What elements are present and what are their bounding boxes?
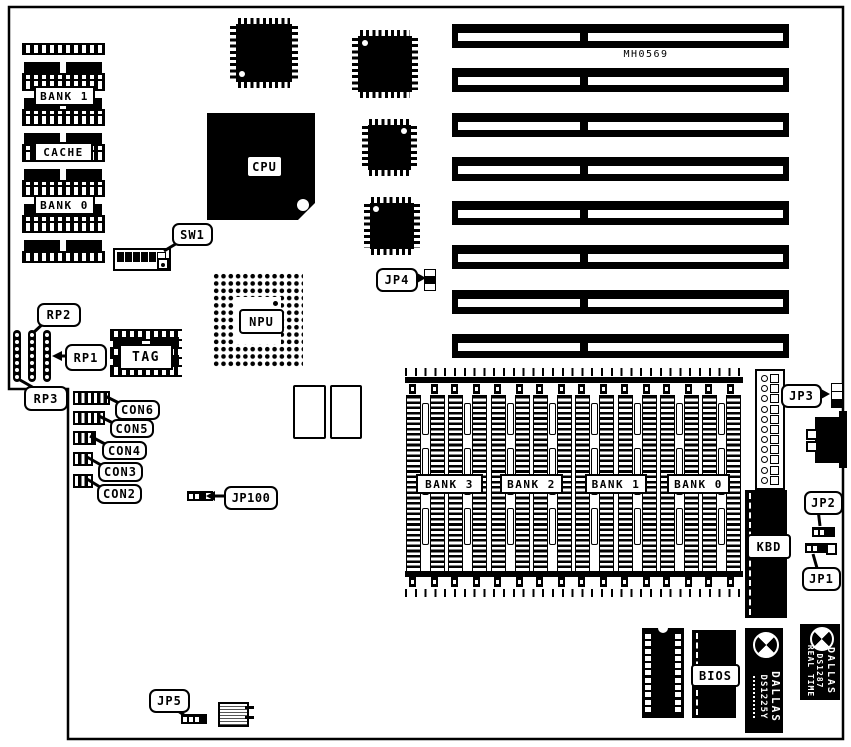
simm-clip [727,384,734,394]
cache-pin-row [22,114,105,126]
power-pin-row [759,394,781,403]
simm-keying-slot [422,508,429,545]
cache-chip-body [24,169,60,180]
con3-header [73,452,93,466]
eprom-pad [645,685,651,690]
eprom-pad [645,656,651,661]
eprom-pad [675,692,681,697]
jp4-callout: JP4 [376,268,418,292]
qfp-chip-1 [230,18,298,88]
sip-pin-dot [15,333,19,337]
eprom-pad [675,670,681,675]
simm-clip [516,384,523,394]
sip-pin-dot [15,361,19,365]
keyboard-din-connector [815,417,847,463]
eprom-pad [645,707,651,712]
jp3-jumper [831,383,843,408]
eprom-pad [645,641,651,646]
power-pin-row [759,466,781,475]
rp3-callout: RP3 [24,386,68,411]
qfp-chip-2 [352,30,418,98]
sip-pin-dot [30,354,34,358]
cache-chip-body [24,62,60,73]
eprom-pad [645,700,651,705]
isa-slot [452,334,789,358]
jp5-jumper [181,714,207,724]
simm-clip [600,384,607,394]
sw1-callout: SW1 [172,223,213,246]
simm-keying-slot [507,403,514,435]
isa-slot-window [458,122,580,130]
simm-keying-slot [549,403,556,435]
memory-bank1-label: BANK 1 [585,474,647,494]
simm-clip [431,577,438,587]
simm-clip [494,577,501,587]
simm-clip [663,577,670,587]
kbd-label: KBD [747,534,791,559]
eprom-pad [675,663,681,668]
cache-body-row [22,169,105,180]
con5-header [73,411,105,425]
eprom-pad [645,634,651,639]
simm-clip [643,577,650,587]
rp3-sip-pack [13,330,21,382]
eprom-pad [675,649,681,654]
sw1-index-dot [161,263,165,267]
jp1-jumper-cap [826,543,837,555]
con4-callout: CON4 [102,441,147,460]
rp1-sip-pack [43,330,51,382]
isa-slot-window [588,210,783,218]
isa-slot-window [458,33,580,41]
isa-slot-window [588,166,783,174]
jp3-callout: JP3 [781,384,822,408]
motherboard-diagram: BANK 1 CACHE BANK 0 CPU [0,0,851,747]
eprom-pad [675,641,681,646]
eprom-pad [675,700,681,705]
qfp-chip-4 [364,197,420,255]
eprom-pad [675,685,681,690]
power-pin-row [759,374,781,383]
cache-label: CACHE [34,142,93,162]
simm-keying-slot [464,403,471,435]
rp2-sip-pack [28,330,36,382]
jp1-callout: JP1 [802,567,841,591]
isa-slot-window [588,77,783,85]
con5-callout: CON5 [110,419,154,438]
simm-keying-slot [718,508,725,545]
simm-keying-slot [507,508,514,545]
eprom-chip [642,628,684,718]
simm-clip [473,384,480,394]
eprom-pad [675,634,681,639]
con2-header [73,474,93,488]
isa-slot-window [458,77,580,85]
simm-clip [685,577,692,587]
cache-chip-body [66,240,102,251]
cpu-label: CPU [246,155,283,178]
simm-keying-slot [591,403,598,435]
simm-clip [409,577,416,587]
npu-label: NPU [239,309,284,334]
rtc-brand: DALLAS [825,638,837,700]
jp100-jumper-cap [204,491,213,501]
dallas-ds1287-rtc: DALLAS DS1287 REAL TIME [800,624,840,700]
sip-pin-dot [45,340,49,344]
simm-keying-slot [591,508,598,545]
sip-pin-dot [30,361,34,365]
simm-keying-slot [634,508,641,545]
board-marking: MH0569 [606,49,686,60]
isa-slot-window [458,166,580,174]
isa-slot-window [588,122,783,130]
eprom-pad [645,649,651,654]
simm-clip [451,577,458,587]
sip-pin-dot [15,354,19,358]
jp100-callout: JP100 [224,486,278,510]
simm-keying-slot [676,403,683,435]
cache-pin-row [22,221,105,233]
sip-pin-dot [30,375,34,379]
keyboard-din-pin-1 [806,429,818,440]
isa-slot-window [588,343,783,351]
sip-pin-dot [45,375,49,379]
sip-pin-dot [30,368,34,372]
simm-keying-slot [676,508,683,545]
con6-header [73,391,110,405]
simm-keying-slot [422,403,429,435]
simm-clip [536,577,543,587]
power-pin-row [759,435,781,444]
memory-bank0-label: BANK 0 [667,474,730,494]
isa-slot-window [588,299,783,307]
cache-chip-body [66,169,102,180]
isa-slot-window [458,254,580,262]
simm-clip [494,384,501,394]
simm-clip [431,384,438,394]
rp2-callout: RP2 [37,303,81,327]
eprom-pad [675,707,681,712]
simm-clip [558,384,565,394]
keyboard-din-pin-2 [806,441,818,452]
oscillator-socket-1 [293,385,326,439]
isa-slot [452,113,789,137]
simm-clip [727,577,734,587]
simm-clip [663,384,670,394]
sip-pin-dot [45,347,49,351]
con3-callout: CON3 [98,462,143,482]
sip-pin-dot [30,333,34,337]
eprom-pad [645,663,651,668]
cache-bank1-label: BANK 1 [34,86,95,106]
cache-pin-row [22,251,105,263]
sip-pin-dot [15,368,19,372]
simm-clip [705,577,712,587]
simm-clip [558,577,565,587]
sip-pin-dot [45,368,49,372]
jp2-callout: JP2 [804,491,843,515]
nvram-brand: DALLAS [768,652,781,733]
crystal-pin-1 [245,706,254,709]
simm-clip [705,384,712,394]
cache-body-row [22,62,105,73]
con6-callout: CON6 [115,400,160,420]
rp1-callout: RP1 [65,344,107,371]
isa-slot-window [588,33,783,41]
power-pin-row [759,455,781,464]
sip-pin-dot [15,347,19,351]
con4-header [73,431,96,445]
simm-top-ticks [405,368,743,376]
eprom-pad [645,678,651,683]
isa-slot [452,201,789,225]
power-pin-row [759,476,781,485]
sip-pin-dot [30,347,34,351]
simm-clip [685,384,692,394]
sip-pin-dot [45,354,49,358]
memory-bank3-label: BANK 3 [416,474,483,494]
con2-callout: CON2 [97,484,142,504]
nvram-part: DS1225Y [758,652,768,733]
simm-clip [621,384,628,394]
simm-clip [600,577,607,587]
eprom-pad [645,670,651,675]
isa-slot [452,290,789,314]
rtc-line3: REAL TIME [806,638,815,700]
simm-clip [643,384,650,394]
simm-clip [578,384,585,394]
isa-slot [452,245,789,269]
cache-body-row [22,240,105,251]
rtc-part: DS1287 [815,638,824,700]
jp5-callout: JP5 [149,689,190,713]
simm-keying-slot [549,508,556,545]
eprom-pad [675,678,681,683]
jp4-jumper [424,269,436,291]
memory-bank2-label: BANK 2 [500,474,563,494]
power-pin-row [759,415,781,424]
bios-label: BIOS [691,664,740,687]
simm-bottom-ticks [405,589,743,597]
tag-label: TAG [119,344,173,370]
simm-clip [621,577,628,587]
sip-pin-dot [15,340,19,344]
cache-pin-row [22,43,105,55]
qfp-chip-3 [362,119,417,176]
sip-pin-dot [15,375,19,379]
simm-keying-slot [634,403,641,435]
simm-keying-slot [464,508,471,545]
power-connector [755,369,785,490]
cache-chip-body [24,240,60,251]
power-pin-row [759,425,781,434]
oscillator-socket-2 [330,385,362,439]
power-pin-row [759,445,781,454]
sip-pin-dot [45,333,49,337]
isa-slot-window [458,343,580,351]
simm-clip [516,577,523,587]
jp2-jumper [812,527,835,537]
eprom-pad [645,692,651,697]
isa-slot-group [452,24,789,358]
isa-slot [452,24,789,48]
simm-clip [473,577,480,587]
isa-slot [452,157,789,181]
power-pin-row [759,384,781,393]
simm-top-rail [405,377,743,383]
isa-slot-window [588,254,783,262]
crystal-pin-2 [245,716,254,719]
sip-pin-dot [30,340,34,344]
simm-clip [409,384,416,394]
isa-slot [452,68,789,92]
simm-clip [536,384,543,394]
cache-chip-body [66,62,102,73]
isa-slot-window [458,210,580,218]
isa-slot-window [458,299,580,307]
simm-clip [578,577,585,587]
sip-pin-dot [45,361,49,365]
dallas-ds1225y-chip: DALLAS DS1225Y [745,628,783,733]
power-pin-row [759,405,781,414]
eprom-pad [675,656,681,661]
simm-clip [451,384,458,394]
simm-keying-slot [718,403,725,435]
cache-bank0-label: BANK 0 [34,195,95,215]
